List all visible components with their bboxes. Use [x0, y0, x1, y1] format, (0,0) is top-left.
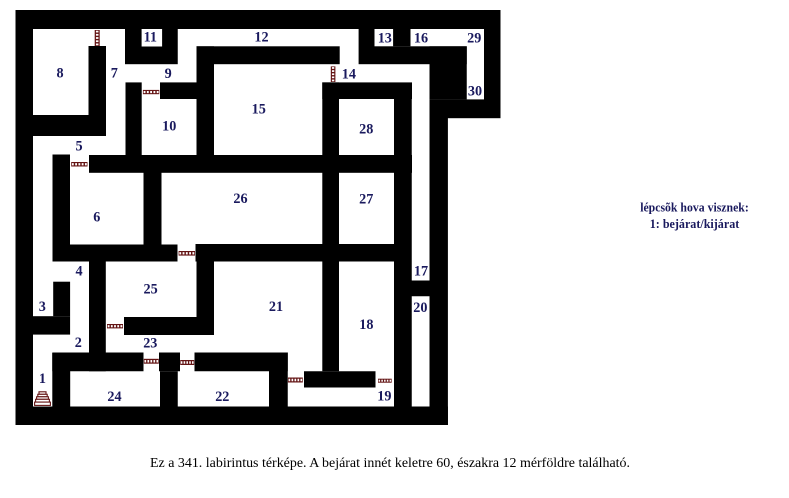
svg-text:6: 6	[93, 209, 100, 225]
svg-text:19: 19	[377, 389, 391, 405]
svg-text:7: 7	[111, 66, 118, 82]
svg-text:14: 14	[342, 66, 356, 82]
svg-text:4: 4	[75, 264, 82, 280]
svg-text:21: 21	[269, 299, 283, 315]
svg-text:10: 10	[162, 119, 176, 135]
svg-text:11: 11	[144, 30, 157, 46]
svg-text:22: 22	[215, 389, 229, 405]
svg-text:16: 16	[414, 30, 428, 46]
svg-text:27: 27	[359, 191, 373, 207]
svg-text:3: 3	[39, 299, 46, 315]
svg-text:18: 18	[359, 317, 373, 333]
svg-text:23: 23	[143, 335, 157, 351]
svg-text:lépcsõk hova visznek:: lépcsõk hova visznek:	[640, 201, 749, 215]
svg-text:13: 13	[378, 30, 392, 46]
svg-text:12: 12	[254, 30, 268, 46]
svg-text:8: 8	[57, 65, 64, 81]
svg-text:1: bejárat/kijárat: 1: bejárat/kijárat	[650, 217, 740, 231]
svg-text:Ez a 341. labirintus térképe.: Ez a 341. labirintus térképe. A bejárat …	[150, 455, 630, 470]
svg-text:20: 20	[413, 300, 427, 316]
svg-text:30: 30	[468, 84, 482, 100]
svg-text:5: 5	[76, 138, 83, 154]
svg-text:17: 17	[414, 264, 428, 280]
svg-text:1: 1	[39, 371, 46, 387]
svg-text:24: 24	[107, 389, 121, 405]
svg-text:25: 25	[144, 281, 158, 297]
svg-text:29: 29	[467, 30, 481, 46]
svg-text:15: 15	[252, 102, 266, 118]
svg-text:2: 2	[75, 335, 82, 351]
svg-text:26: 26	[233, 191, 247, 207]
svg-text:9: 9	[165, 66, 172, 82]
svg-text:28: 28	[359, 121, 373, 137]
